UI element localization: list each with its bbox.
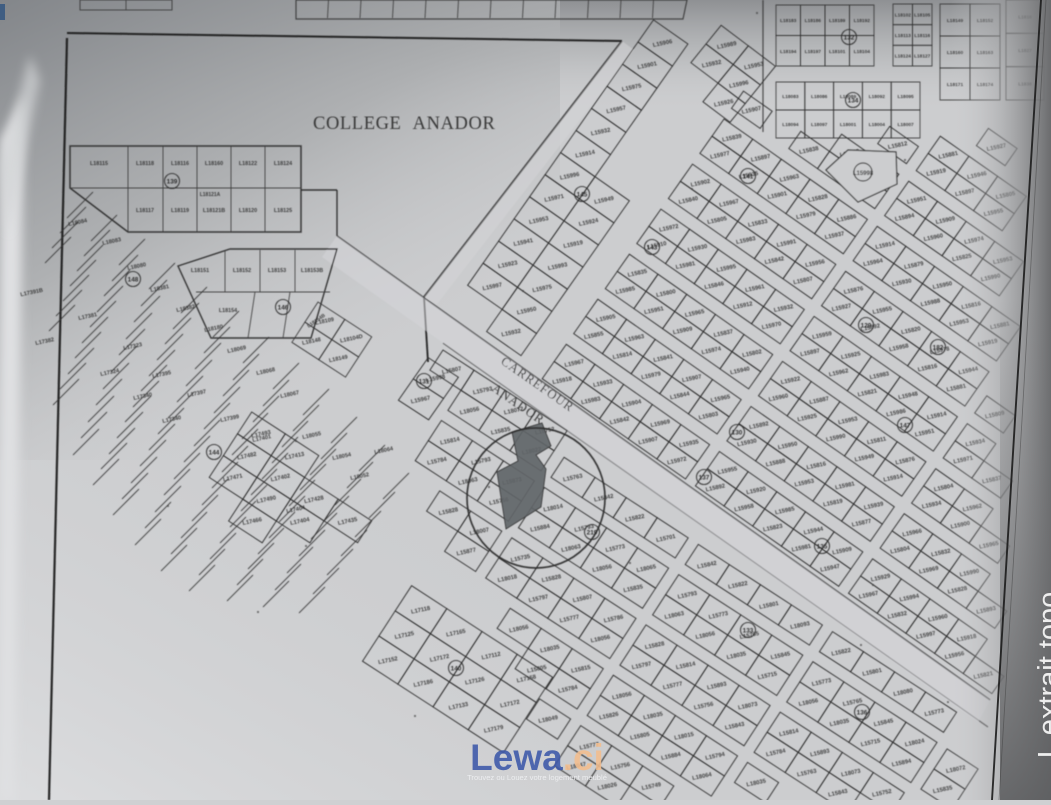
svg-text:144: 144 (209, 449, 220, 456)
svg-text:L18119: L18119 (171, 208, 189, 214)
svg-text:L18118: L18118 (136, 161, 154, 167)
svg-text:L18153: L18153 (268, 268, 286, 274)
svg-text:L18151: L18151 (191, 268, 209, 274)
svg-text:Lewa.ci: Lewa.ci (470, 737, 604, 778)
svg-text:130: 130 (732, 429, 743, 436)
svg-text:146: 146 (278, 304, 289, 311)
svg-text:148: 148 (128, 276, 139, 283)
svg-text:134: 134 (848, 97, 859, 104)
svg-text:Trouvez ou Louez votre logemen: Trouvez ou Louez votre logement meublé (467, 773, 607, 782)
svg-text:L18186: L18186 (805, 18, 822, 24)
svg-text:143: 143 (647, 244, 658, 251)
svg-text:L18086: L18086 (811, 94, 828, 100)
svg-text:L18115: L18115 (90, 161, 108, 167)
svg-text:L18113: L18113 (895, 33, 911, 39)
svg-text:140: 140 (451, 665, 462, 672)
svg-text:141: 141 (743, 173, 754, 180)
svg-text:L18121B: L18121B (203, 208, 225, 214)
svg-text:L18194: L18194 (780, 49, 797, 55)
svg-text:L18183: L18183 (780, 18, 797, 24)
svg-text:L18153B: L18153B (301, 268, 323, 274)
svg-text:L18160: L18160 (205, 161, 223, 167)
svg-text:147: 147 (900, 422, 911, 429)
svg-text:132: 132 (844, 34, 855, 41)
svg-text:L15998: L15998 (853, 171, 874, 177)
svg-text:L18197: L18197 (805, 49, 822, 55)
svg-text:L18127: L18127 (914, 54, 931, 60)
svg-text:136: 136 (857, 709, 868, 716)
svg-text:137: 137 (699, 474, 710, 481)
svg-text:L18192: L18192 (854, 18, 871, 24)
svg-text:139: 139 (167, 178, 178, 185)
svg-text:L extrait topo: L extrait topo (1033, 592, 1051, 759)
svg-text:133: 133 (743, 627, 754, 634)
svg-text:L18117: L18117 (136, 208, 154, 214)
svg-text:L18125: L18125 (274, 208, 292, 214)
svg-text:L18122: L18122 (239, 161, 257, 167)
svg-text:L18097: L18097 (811, 122, 828, 128)
svg-text:L18154: L18154 (219, 308, 237, 314)
svg-text:135: 135 (817, 543, 828, 550)
svg-text:145: 145 (577, 191, 588, 198)
svg-text:L18101: L18101 (829, 49, 846, 55)
svg-text:L18124: L18124 (274, 161, 292, 167)
svg-text:L18102: L18102 (895, 12, 912, 18)
svg-text:L18001: L18001 (840, 122, 857, 128)
svg-text:L18116: L18116 (171, 161, 189, 167)
svg-text:L18004: L18004 (869, 122, 886, 128)
svg-text:COLLEGE ANADOR: COLLEGE ANADOR (313, 114, 495, 134)
svg-text:L18104: L18104 (854, 49, 871, 55)
svg-text:L18007: L18007 (897, 122, 914, 128)
svg-text:131: 131 (419, 378, 430, 385)
svg-text:L18152: L18152 (233, 268, 251, 274)
svg-text:182: 182 (933, 344, 944, 351)
svg-text:129: 129 (861, 322, 872, 329)
svg-text:L18124: L18124 (895, 54, 912, 60)
svg-text:L18092: L18092 (869, 94, 886, 100)
svg-text:L18083: L18083 (782, 94, 799, 100)
svg-text:L18120: L18120 (239, 208, 257, 214)
svg-text:L18105: L18105 (914, 12, 931, 18)
svg-text:L18121A: L18121A (200, 192, 221, 198)
svg-text:L18094: L18094 (782, 122, 799, 128)
svg-text:L18116: L18116 (914, 33, 930, 39)
svg-text:L18189: L18189 (829, 18, 846, 24)
svg-text:L18095: L18095 (897, 94, 914, 100)
